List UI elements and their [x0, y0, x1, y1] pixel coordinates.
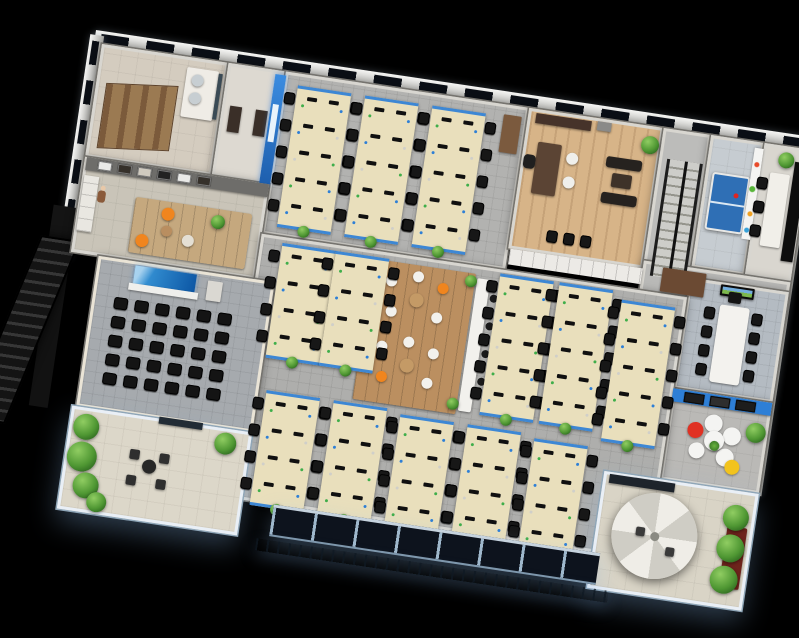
chair — [484, 122, 497, 135]
desk-item — [537, 457, 540, 460]
photo-frame — [196, 176, 211, 187]
monitor — [392, 137, 402, 142]
chair — [508, 525, 521, 538]
monitor — [285, 485, 295, 490]
cafe-table — [399, 358, 415, 374]
desk-item — [281, 288, 284, 291]
monitor — [497, 365, 507, 370]
monitor — [355, 346, 365, 351]
training-chair — [190, 347, 206, 361]
chair — [749, 224, 762, 237]
chair — [541, 315, 554, 328]
chair — [264, 276, 277, 289]
chair — [698, 344, 711, 357]
monitor — [463, 120, 473, 125]
desk-item — [296, 495, 299, 498]
photo-frame — [176, 173, 191, 184]
chair — [476, 175, 489, 188]
desk-item — [533, 484, 536, 487]
chair — [700, 325, 713, 338]
monitor — [401, 479, 411, 484]
desk-item — [597, 333, 600, 336]
desk-item — [375, 425, 378, 428]
monitor — [515, 395, 525, 400]
desk-item — [352, 221, 355, 224]
monitor — [473, 462, 483, 467]
monitor — [409, 426, 419, 431]
chair — [595, 386, 608, 399]
whiteboard — [267, 104, 279, 142]
training-chair — [164, 381, 180, 395]
desk-item — [442, 439, 445, 442]
desk-item — [364, 141, 367, 144]
desk-item — [399, 460, 402, 463]
desk-item — [273, 342, 276, 345]
chair — [545, 288, 558, 301]
chair — [267, 198, 280, 211]
chair — [252, 396, 265, 409]
monitor — [299, 150, 309, 155]
desk-item — [663, 324, 666, 327]
training-chair — [211, 350, 227, 364]
desk-item — [621, 345, 624, 348]
desk-item — [434, 492, 437, 495]
photo-frame — [137, 167, 152, 178]
desk-item — [505, 475, 508, 478]
monitor — [565, 321, 575, 326]
chair — [256, 329, 269, 342]
chair — [574, 534, 587, 547]
chair — [657, 423, 670, 436]
chair — [486, 280, 499, 293]
monitor — [388, 164, 398, 169]
desk-item — [438, 465, 441, 468]
desk-item — [325, 499, 328, 502]
chair — [240, 476, 253, 489]
training-chair — [134, 300, 150, 314]
desk-item — [301, 104, 304, 107]
training-chair — [214, 331, 230, 345]
training-chair — [193, 328, 209, 342]
patio-chair — [155, 479, 166, 490]
desk-item — [463, 496, 466, 499]
monitor — [578, 377, 588, 382]
monitor — [553, 401, 563, 406]
monitor — [590, 297, 600, 302]
monitor — [367, 266, 377, 271]
chair — [383, 294, 396, 307]
monitor — [419, 509, 429, 514]
training-chair — [152, 322, 168, 336]
monitor — [297, 405, 307, 410]
desk-item — [470, 157, 473, 160]
monitor — [631, 311, 641, 316]
chair — [661, 396, 674, 409]
desk-item — [491, 372, 494, 375]
monitor — [637, 421, 647, 426]
monitor — [543, 450, 553, 455]
desk-item — [467, 470, 470, 473]
desk-item — [285, 211, 288, 214]
floor-plan — [31, 44, 799, 625]
chair — [665, 369, 678, 382]
training-chair — [155, 303, 171, 317]
chair — [607, 306, 620, 319]
monitor — [364, 415, 374, 420]
desk-item — [499, 319, 502, 322]
desk-item — [423, 204, 426, 207]
desk-item — [625, 318, 628, 321]
desk-item — [261, 462, 264, 465]
monitor — [291, 254, 301, 259]
chair — [445, 484, 458, 497]
training-chair — [107, 334, 123, 348]
desk-item — [403, 147, 406, 150]
chair — [586, 454, 599, 467]
monitor — [523, 342, 533, 347]
desk-item — [363, 505, 366, 508]
desk-item — [368, 114, 371, 117]
desk-item — [462, 210, 465, 213]
desk-item — [403, 433, 406, 436]
chair — [346, 128, 359, 141]
monitor — [586, 324, 596, 329]
monitor — [447, 227, 457, 232]
chair — [468, 228, 481, 241]
desk-item — [337, 419, 340, 422]
chair — [591, 413, 604, 426]
monitor — [569, 294, 579, 299]
desk-item — [474, 130, 477, 133]
monitor — [648, 341, 658, 346]
training-chair — [105, 353, 121, 367]
monitor — [405, 452, 415, 457]
cafe-chair — [430, 312, 443, 325]
chair — [751, 313, 764, 326]
monitor — [313, 207, 323, 212]
monitor — [337, 316, 347, 321]
chair — [244, 450, 257, 463]
monitor — [490, 492, 500, 497]
desk-item — [601, 307, 604, 310]
chair — [578, 508, 591, 521]
cafe-chair — [403, 336, 416, 349]
desk-item — [487, 399, 490, 402]
training-chair — [188, 365, 204, 379]
monitor — [615, 418, 625, 423]
chair — [402, 218, 415, 231]
training-chair — [173, 325, 189, 339]
monitor — [469, 489, 479, 494]
chair — [378, 474, 391, 487]
monitor — [359, 319, 369, 324]
training-chair — [125, 356, 141, 370]
desk-item — [367, 478, 370, 481]
chair — [379, 320, 392, 333]
sofa-petal — [722, 426, 742, 446]
training-chair — [208, 369, 224, 383]
monitor — [619, 391, 629, 396]
chair — [599, 359, 612, 372]
chair — [673, 316, 686, 329]
desk-item — [331, 323, 334, 326]
chair — [562, 232, 575, 245]
monitor — [451, 200, 461, 205]
cafe-chair — [375, 370, 388, 383]
monitor — [531, 288, 541, 293]
desk-item — [293, 158, 296, 161]
podium — [205, 280, 223, 302]
desk-item — [371, 451, 374, 454]
chair — [317, 284, 330, 297]
desk-item — [335, 296, 338, 299]
monitor — [333, 342, 343, 347]
monitor — [539, 476, 549, 481]
monitor — [557, 506, 567, 511]
desk-item — [547, 408, 550, 411]
monitor — [291, 204, 301, 209]
monitor — [561, 347, 571, 352]
desk-item — [495, 346, 498, 349]
chair — [307, 486, 320, 499]
wall-frame — [597, 121, 612, 132]
desk-item — [391, 227, 394, 230]
chair — [745, 351, 758, 364]
monitor — [465, 516, 475, 521]
training-chair — [123, 375, 139, 389]
desk-item — [308, 415, 311, 418]
monitor — [427, 456, 437, 461]
chair — [748, 332, 761, 345]
stair-rail — [668, 161, 688, 278]
chair — [334, 208, 347, 221]
chair — [418, 112, 431, 125]
chair — [279, 118, 292, 131]
monitor — [293, 432, 303, 437]
monitor — [366, 160, 376, 165]
chair — [516, 471, 529, 484]
desk-item — [304, 441, 307, 444]
monitor — [384, 190, 394, 195]
chair — [387, 267, 400, 280]
chair — [603, 332, 616, 345]
monitor — [345, 262, 355, 267]
desk-item — [551, 381, 554, 384]
chair — [537, 342, 550, 355]
desk-item — [323, 217, 326, 220]
chair — [248, 423, 261, 436]
monitor — [498, 439, 508, 444]
monitor — [380, 217, 390, 222]
desk-item — [609, 425, 612, 428]
monitor — [519, 368, 529, 373]
chair — [260, 302, 273, 315]
monitor — [363, 292, 373, 297]
training-chair — [146, 359, 162, 373]
chair — [529, 395, 542, 408]
desk-item — [327, 350, 330, 353]
monitor — [329, 100, 339, 105]
chair — [382, 447, 395, 460]
chair — [579, 235, 592, 248]
desk-item — [555, 354, 558, 357]
monitor — [335, 465, 345, 470]
desk-item — [563, 301, 566, 304]
desk-item — [525, 537, 528, 540]
desk-item — [509, 449, 512, 452]
patio-chair — [159, 453, 170, 464]
training-chair — [143, 378, 159, 392]
scene — [0, 0, 799, 638]
monitor — [362, 187, 372, 192]
sofa-petal — [686, 421, 704, 439]
desk-item — [655, 378, 658, 381]
sofa-petal — [687, 441, 705, 459]
monitor — [509, 285, 519, 290]
desk-item — [593, 360, 596, 363]
training-chair — [128, 337, 144, 351]
patio-chair — [125, 474, 136, 485]
desk-item — [277, 315, 280, 318]
desk-item — [297, 131, 300, 134]
chair — [669, 342, 682, 355]
monitor — [652, 314, 662, 319]
chair — [268, 249, 281, 262]
desk-item — [329, 472, 332, 475]
monitor — [565, 453, 575, 458]
monitor — [486, 519, 496, 524]
training-chair — [102, 372, 118, 386]
desk-item — [503, 292, 506, 295]
chair — [474, 360, 487, 373]
chair — [582, 481, 595, 494]
cafe-chair — [437, 282, 450, 295]
desk-item — [585, 414, 588, 417]
cafe-chair — [421, 377, 434, 390]
desk-item — [360, 168, 363, 171]
monitor — [582, 350, 592, 355]
desk-item — [501, 502, 504, 505]
desk-item — [458, 237, 461, 240]
chair — [309, 337, 322, 350]
chair — [315, 433, 328, 446]
monitor — [645, 368, 655, 373]
training-chair — [206, 387, 222, 401]
desk-item — [572, 489, 575, 492]
desk-item — [529, 510, 532, 513]
desk-item — [471, 443, 474, 446]
desk-item — [431, 151, 434, 154]
monitor — [425, 224, 435, 229]
chair — [756, 176, 769, 189]
monitor — [553, 533, 563, 538]
monitor — [370, 134, 380, 139]
desk-item — [269, 409, 272, 412]
monitor — [557, 374, 567, 379]
monitor — [441, 117, 451, 122]
monitor — [641, 395, 651, 400]
cafe-table — [409, 292, 425, 308]
desk-item — [289, 184, 292, 187]
monitor — [287, 281, 297, 286]
monitor — [459, 147, 469, 152]
cafe-chair — [427, 348, 440, 361]
monitor — [494, 466, 504, 471]
monitor — [295, 177, 305, 182]
chair — [482, 306, 495, 319]
monitor — [429, 197, 439, 202]
desk-item — [333, 446, 336, 449]
desk-item — [419, 231, 422, 234]
chair — [512, 498, 525, 511]
desk-item — [564, 543, 567, 546]
chair — [470, 386, 483, 399]
petal-sofa — [684, 415, 749, 477]
desk-item — [651, 404, 654, 407]
chair — [275, 145, 288, 158]
desk-item — [335, 137, 338, 140]
chair — [311, 460, 324, 473]
desk-item — [391, 513, 394, 516]
patio-chair — [129, 449, 140, 460]
chair — [533, 369, 546, 382]
training-chair — [185, 384, 201, 398]
monitor — [303, 124, 313, 129]
monitor — [374, 107, 384, 112]
monitor — [325, 127, 335, 132]
desk-item — [265, 436, 268, 439]
toilet-stalls — [97, 83, 179, 151]
desk-item — [568, 516, 571, 519]
monitor — [358, 214, 368, 219]
desk-item — [559, 328, 562, 331]
monitor — [627, 338, 637, 343]
monitor — [561, 480, 571, 485]
training-chair — [196, 309, 212, 323]
desk-item — [339, 110, 342, 113]
monitor — [493, 392, 503, 397]
chair — [406, 192, 419, 205]
desk-item — [365, 355, 368, 358]
person-body — [97, 190, 107, 203]
desk-item — [339, 270, 342, 273]
monitor — [623, 365, 633, 370]
desk-item — [576, 463, 579, 466]
desk-item — [395, 200, 398, 203]
monitor — [321, 154, 331, 159]
coffee-table — [610, 173, 632, 190]
chair — [374, 500, 387, 513]
desk-item — [427, 178, 430, 181]
cafe-chair — [385, 305, 398, 318]
photo-frame — [97, 161, 112, 172]
monitor — [397, 506, 407, 511]
chair — [350, 102, 363, 115]
chair — [338, 182, 351, 195]
chair — [472, 202, 485, 215]
monitor — [477, 436, 487, 441]
desk-item — [407, 120, 410, 123]
chair — [414, 138, 427, 151]
desk-item — [430, 519, 433, 522]
monitor — [283, 308, 293, 313]
patio-chair — [665, 547, 675, 557]
ball — [733, 193, 739, 199]
chair — [342, 155, 355, 168]
monitor — [527, 315, 537, 320]
chair — [271, 172, 284, 185]
desk-island — [319, 251, 390, 374]
